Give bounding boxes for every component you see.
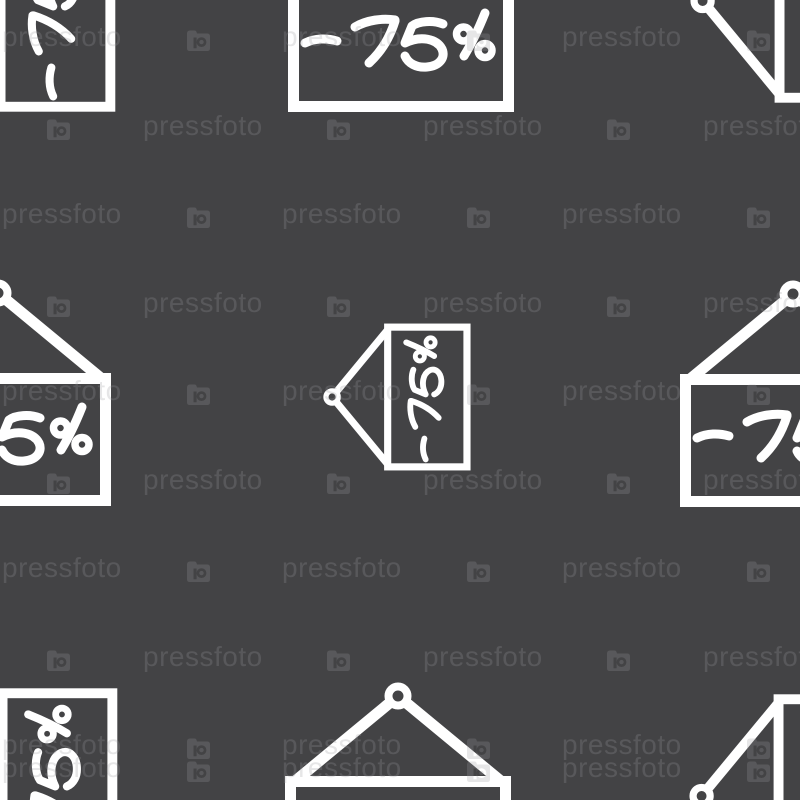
watermark-text: pressfoto [2, 21, 122, 52]
watermark-text: pressfoto [562, 198, 682, 229]
watermark-text: pressfoto [2, 752, 122, 783]
watermark-text: pressfoto [703, 287, 800, 318]
watermark-text: pressfoto [703, 464, 800, 495]
watermark-text: pressfoto [282, 21, 402, 52]
watermark-text: pressfoto [143, 287, 263, 318]
watermark-text: pressfoto [703, 641, 800, 672]
watermark-text: pressfoto [562, 21, 682, 52]
watermark-text: pressfoto [2, 198, 122, 229]
watermark-text: pressfoto [562, 552, 682, 583]
watermark-text: pressfoto [282, 552, 402, 583]
watermark-text: pressfoto [2, 375, 122, 406]
discount-pattern-canvas: -75% [0, 0, 800, 800]
watermark-text: pressfoto [282, 752, 402, 783]
watermark-text: pressfoto [423, 464, 543, 495]
watermark-text: pressfoto [703, 110, 800, 141]
watermark-text: pressfoto [423, 641, 543, 672]
watermark-text: pressfoto [143, 464, 263, 495]
pattern-preview: -75% -75% [0, 0, 800, 800]
watermark-text: pressfoto [423, 287, 543, 318]
watermark-text: pressfoto [143, 641, 263, 672]
watermark-text: pressfoto [143, 110, 263, 141]
watermark-text: pressfoto [562, 375, 682, 406]
watermark-text: pressfoto [423, 110, 543, 141]
watermark-text: pressfoto [562, 752, 682, 783]
watermark-text: pressfoto [2, 552, 122, 583]
watermark-text: pressfoto [282, 198, 402, 229]
watermark-text: pressfoto [282, 375, 402, 406]
